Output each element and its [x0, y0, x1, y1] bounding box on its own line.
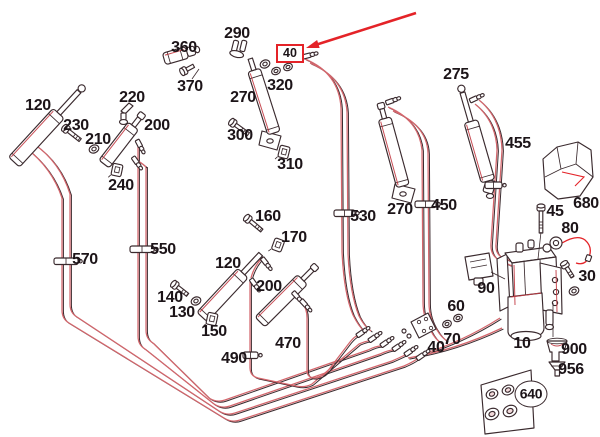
part-label-455[interactable]: 455: [505, 136, 531, 152]
highlight-arrow-shaft: [316, 13, 416, 45]
part-washer-320-b: [270, 66, 281, 76]
part-label-210[interactable]: 210: [85, 132, 111, 148]
part-pin-30: [559, 259, 576, 279]
part-union-fitting-1: [356, 325, 371, 337]
part-label-200[interactable]: 200: [144, 118, 170, 134]
pump-unit-10-drawing: [497, 240, 562, 341]
part-label-80[interactable]: 80: [561, 221, 578, 237]
part-label-90[interactable]: 90: [477, 281, 494, 297]
part-washer-40: [282, 62, 293, 72]
part-label-530[interactable]: 530: [350, 209, 376, 225]
bracket-220-drawing: [120, 103, 134, 124]
part-banjo-fitting-40: [302, 51, 318, 59]
highlighted-part-callout[interactable]: 40: [276, 44, 304, 63]
part-ring-30: [568, 285, 580, 296]
part-washer-320-a: [259, 58, 271, 69]
part-label-956[interactable]: 956: [558, 362, 584, 378]
part-label-290[interactable]: 290: [224, 26, 250, 42]
hose-450-b: [393, 111, 448, 342]
part-label-310[interactable]: 310: [277, 157, 303, 173]
part-label-10[interactable]: 10: [513, 336, 530, 352]
part-label-370[interactable]: 370: [177, 79, 203, 95]
part-label-200-2[interactable]: 200: [256, 279, 282, 295]
part-label-360[interactable]: 360: [171, 40, 197, 56]
part-cylinder-270-right: [374, 101, 409, 187]
part-banjo-fitting-450: [385, 96, 401, 105]
part-label-270-2[interactable]: 270: [387, 202, 413, 218]
part-label-270[interactable]: 270: [230, 90, 256, 106]
part-label-900[interactable]: 900: [561, 342, 587, 358]
part-label-275[interactable]: 275: [443, 67, 469, 83]
part-label-450[interactable]: 450: [431, 198, 457, 214]
part-label-30[interactable]: 30: [578, 269, 595, 285]
part-label-130[interactable]: 130: [169, 305, 195, 321]
part-label-320[interactable]: 320: [267, 78, 293, 94]
part-label-300[interactable]: 300: [227, 128, 253, 144]
part-union-fitting-3: [380, 335, 395, 347]
part-label-120[interactable]: 120: [25, 98, 51, 114]
part-fitting-550-a: [135, 139, 146, 155]
part-label-150[interactable]: 150: [201, 324, 227, 340]
part-label-640[interactable]: 640: [515, 381, 548, 408]
parts-diagram-canvas: [0, 0, 600, 437]
part-bolt-45: [537, 204, 545, 233]
highlighted-part-number: 40: [283, 47, 297, 60]
part-label-240[interactable]: 240: [108, 178, 134, 194]
part-label-60[interactable]: 60: [447, 299, 464, 315]
part-label-70[interactable]: 70: [443, 332, 460, 348]
part-label-160[interactable]: 160: [255, 209, 281, 225]
part-washer-60-a: [441, 319, 452, 329]
part-label-550[interactable]: 550: [150, 242, 176, 258]
part-union-fitting-2: [368, 330, 383, 342]
part-label-680[interactable]: 680: [573, 196, 599, 212]
highlight-arrowhead-icon: [306, 40, 320, 48]
part-union-fitting-5: [404, 344, 419, 356]
hose-530-a: [305, 59, 366, 333]
parts-diagram-stage: 3603702902703203003101202302102202002402…: [0, 0, 600, 437]
part-rod-banjo-120: [260, 257, 273, 272]
part-banjo-fitting-455: [469, 92, 485, 103]
part-label-220[interactable]: 220: [119, 90, 145, 106]
part-label-470[interactable]: 470: [275, 336, 301, 352]
part-label-570[interactable]: 570: [72, 252, 98, 268]
part-label-490[interactable]: 490: [221, 351, 247, 367]
part-label-170[interactable]: 170: [281, 230, 307, 246]
part-bolt-370: [179, 62, 196, 76]
part-label-40[interactable]: 40: [427, 340, 444, 356]
part-label-45[interactable]: 45: [546, 204, 563, 220]
highlight-arrow: [306, 13, 416, 48]
part-hose-clamp-455: [485, 182, 506, 189]
part-label-120-2[interactable]: 120: [215, 256, 241, 272]
hose-550-a: [138, 142, 394, 408]
reservoir-680-drawing: [543, 142, 593, 199]
part-union-fitting-4: [392, 339, 407, 351]
hose-470: [302, 303, 358, 379]
